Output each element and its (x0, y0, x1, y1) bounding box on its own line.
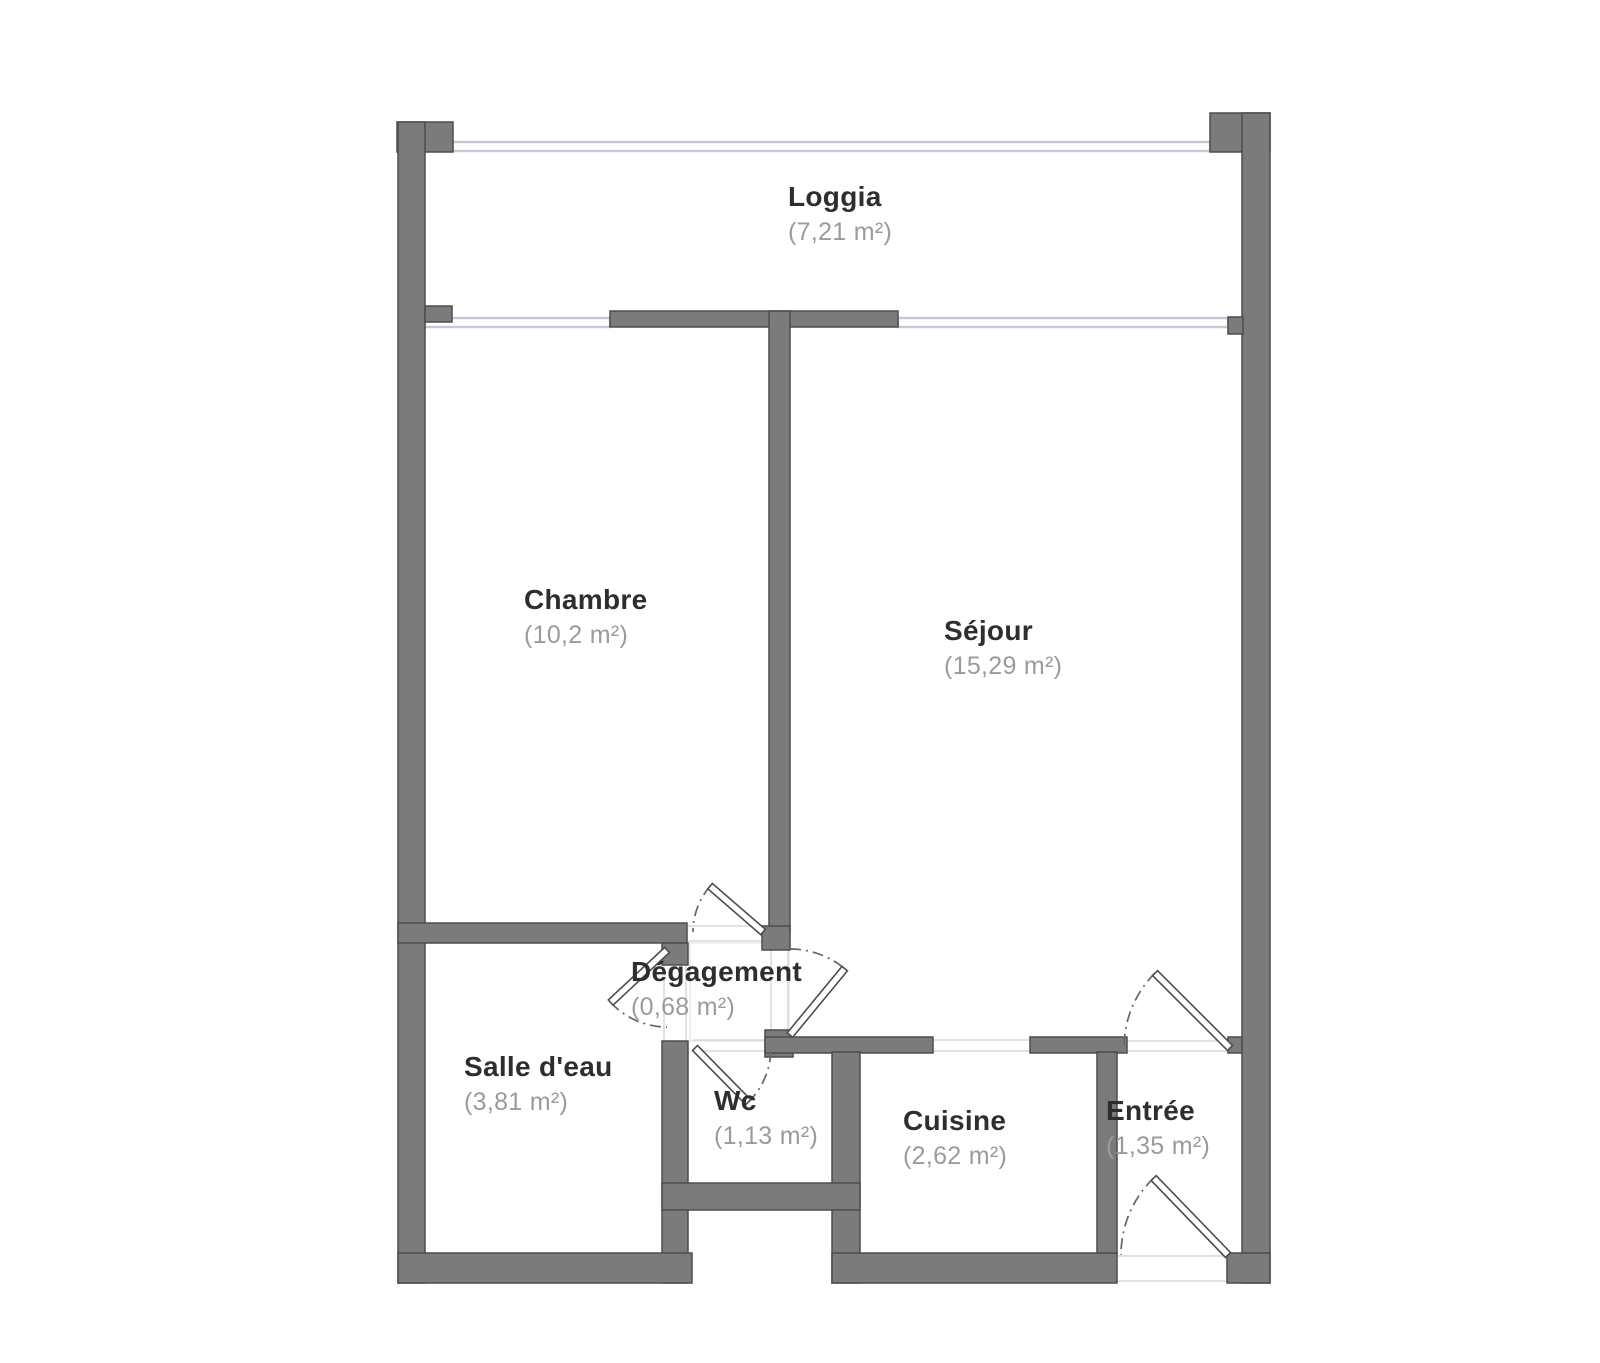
wall-segment (832, 1253, 1117, 1283)
door-chambre (693, 884, 765, 935)
wall-segment (662, 1041, 688, 1283)
room-area: (2,62 m²) (903, 1143, 1007, 1171)
room-area: (0,68 m²) (631, 994, 802, 1022)
wall-segment (1242, 113, 1270, 1283)
room-name: Chambre (524, 585, 647, 616)
wall-segment (1030, 1037, 1127, 1053)
room-label-cuisine: Cuisine (2,62 m²) (903, 1106, 1007, 1170)
door-entry (1121, 1176, 1231, 1258)
floor-plan: Loggia (7,21 m²) Chambre (10,2 m²) Séjou… (0, 0, 1600, 1363)
threshold-chambre (687, 926, 762, 941)
threshold-wc (693, 1040, 765, 1051)
window-sejour-loggia (898, 318, 1228, 327)
door-leaf-icon (1151, 1176, 1230, 1258)
room-name: Séjour (944, 616, 1062, 647)
door-swing-arc (1121, 1178, 1154, 1255)
room-area: (1,35 m²) (1106, 1133, 1210, 1161)
room-name: Cuisine (903, 1106, 1007, 1137)
room-name: Wc (714, 1086, 818, 1117)
door-swing-arc (693, 886, 710, 932)
wall-segment (1228, 317, 1243, 334)
wall-segment (1227, 1253, 1270, 1283)
threshold-cuisine-opening (933, 1040, 1030, 1051)
room-label-loggia: Loggia (7,21 m²) (788, 182, 892, 246)
door-leaf-icon (708, 884, 765, 935)
wall-segment (765, 1037, 933, 1053)
wall-segment (398, 923, 687, 943)
room-label-degagement: Dégagement (0,68 m²) (631, 957, 802, 1021)
wall-segment (832, 1052, 860, 1283)
door-swing-arc (1124, 973, 1155, 1048)
wall-segment (662, 1183, 860, 1210)
room-label-chambre: Chambre (10,2 m²) (524, 585, 647, 649)
wall-segment (398, 1253, 692, 1283)
room-name: Entrée (1106, 1096, 1210, 1127)
room-name: Dégagement (631, 957, 802, 988)
wall-segment (425, 306, 452, 322)
room-label-salle-deau: Salle d'eau (3,81 m²) (464, 1052, 612, 1116)
room-name: Loggia (788, 182, 892, 213)
wall-segment (610, 311, 898, 327)
door-leaf-icon (1153, 971, 1233, 1051)
room-label-sejour: Séjour (15,29 m²) (944, 616, 1062, 680)
room-label-wc: Wc (1,13 m²) (714, 1086, 818, 1150)
room-area: (15,29 m²) (944, 653, 1062, 681)
room-name: Salle d'eau (464, 1052, 612, 1083)
wall-segment (762, 926, 790, 950)
threshold-entry-door (1117, 1256, 1227, 1281)
room-area: (1,13 m²) (714, 1123, 818, 1151)
wall-segment (398, 122, 425, 1283)
room-label-entree: Entrée (1,35 m²) (1106, 1096, 1210, 1160)
room-area: (3,81 m²) (464, 1089, 612, 1117)
wall-segment (769, 311, 790, 932)
room-area: (10,2 m²) (524, 622, 647, 650)
window-loggia-exterior (452, 142, 1210, 151)
room-area: (7,21 m²) (788, 219, 892, 247)
door-sejour-entree (1124, 971, 1232, 1051)
